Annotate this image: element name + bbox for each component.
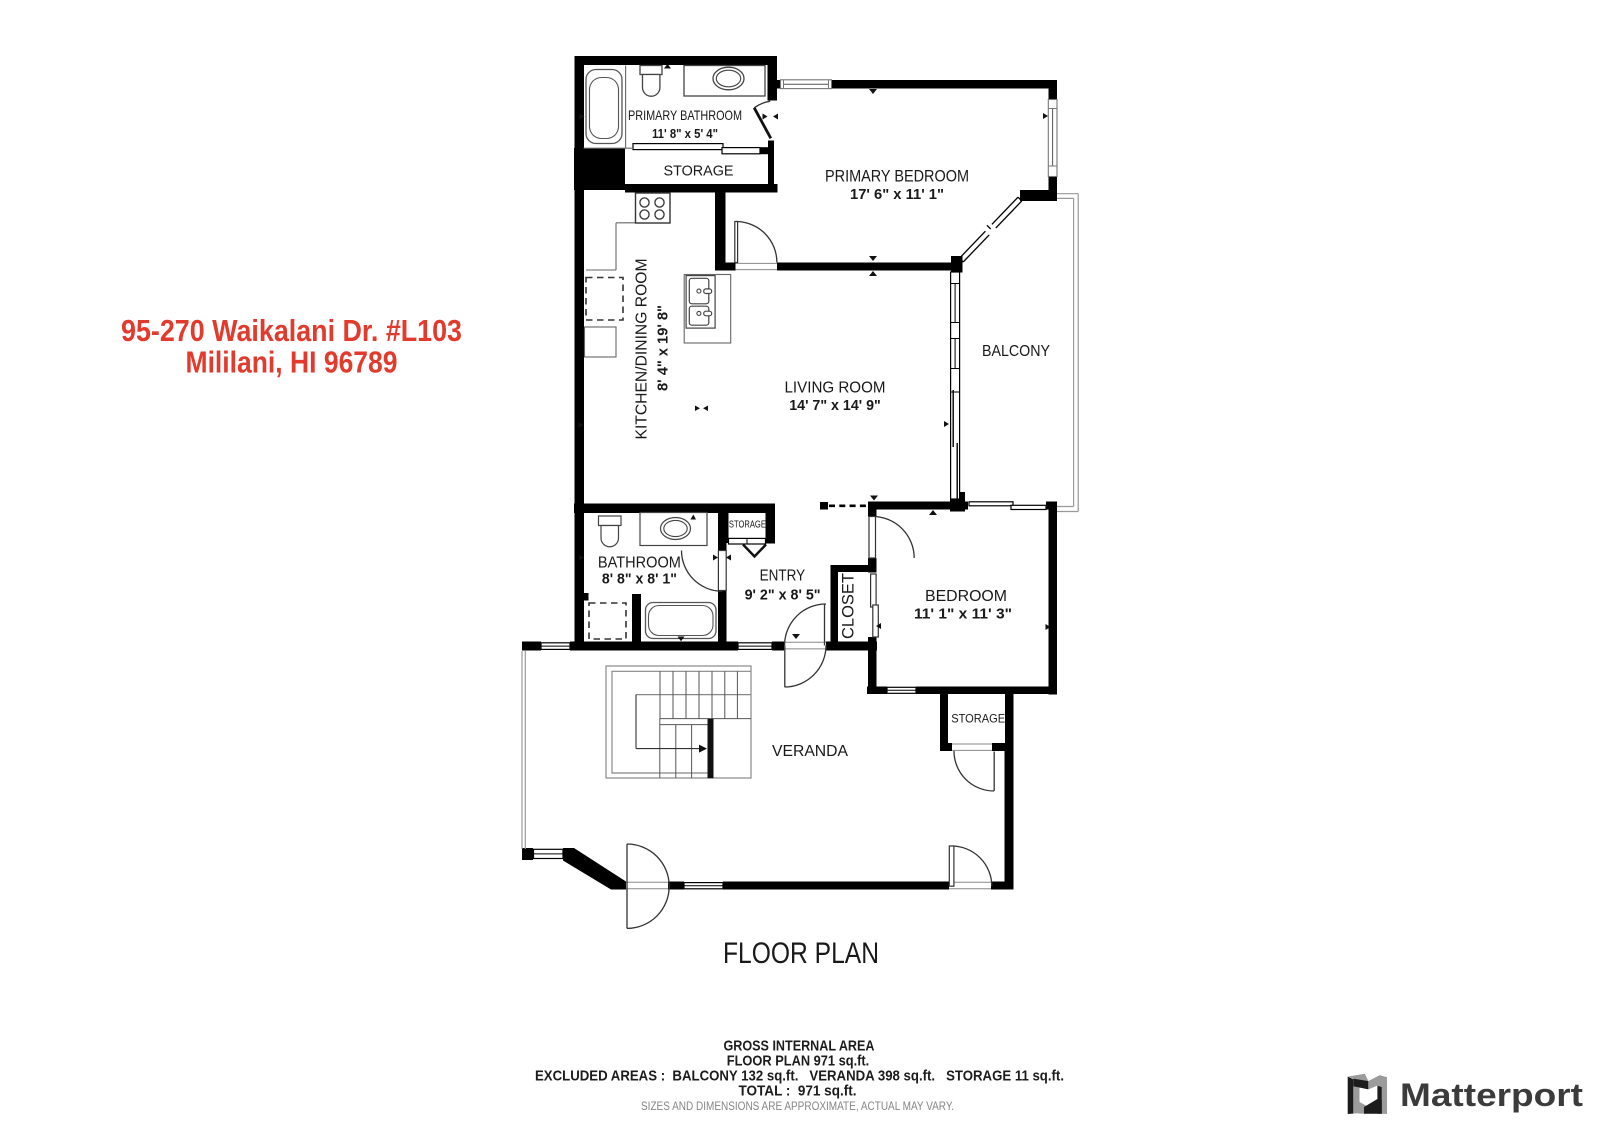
svg-text:17' 6" x 11' 1": 17' 6" x 11' 1" (850, 186, 944, 203)
svg-text:FLOOR PLAN: FLOOR PLAN (723, 937, 879, 970)
svg-text:CLOSET: CLOSET (840, 573, 858, 639)
svg-text:STORAGE: STORAGE (729, 520, 766, 531)
svg-text:Mililani, HI 96789: Mililani, HI 96789 (186, 344, 398, 379)
svg-text:8' 8" x 8' 1": 8' 8" x 8' 1" (602, 572, 677, 588)
svg-text:BATHROOM: BATHROOM (598, 555, 681, 572)
svg-text:Matterport: Matterport (1400, 1077, 1583, 1113)
svg-text:9' 2" x 8' 5": 9' 2" x 8' 5" (745, 586, 821, 603)
svg-text:11' 1" x 11' 3": 11' 1" x 11' 3" (914, 606, 1012, 623)
svg-text:STORAGE: STORAGE (664, 163, 734, 180)
svg-text:PRIMARY BATHROOM: PRIMARY BATHROOM (628, 108, 742, 123)
svg-text:BALCONY: BALCONY (982, 343, 1050, 360)
svg-text:PRIMARY BEDROOM: PRIMARY BEDROOM (825, 168, 969, 186)
svg-text:95-270 Waikalani Dr. #L103: 95-270 Waikalani Dr. #L103 (121, 313, 462, 348)
svg-text:ENTRY: ENTRY (760, 568, 806, 585)
svg-text:BEDROOM: BEDROOM (925, 588, 1007, 605)
svg-text:LIVING ROOM: LIVING ROOM (785, 380, 886, 397)
svg-text:KITCHEN/DINING ROOM: KITCHEN/DINING ROOM (634, 259, 651, 440)
svg-text:8' 4" x 19' 8": 8' 4" x 19' 8" (655, 305, 672, 391)
svg-text:14' 7" x 14' 9": 14' 7" x 14' 9" (789, 397, 881, 414)
svg-text:VERANDA: VERANDA (772, 743, 849, 760)
svg-text:TOTAL : 971 sq.ft.: TOTAL : 971 sq.ft. (739, 1083, 857, 1100)
svg-text:SIZES AND DIMENSIONS ARE APPRO: SIZES AND DIMENSIONS ARE APPROXIMATE, AC… (641, 1100, 954, 1113)
svg-text:STORAGE: STORAGE (951, 713, 1005, 726)
svg-text:11' 8" x 5' 4": 11' 8" x 5' 4" (652, 127, 718, 141)
